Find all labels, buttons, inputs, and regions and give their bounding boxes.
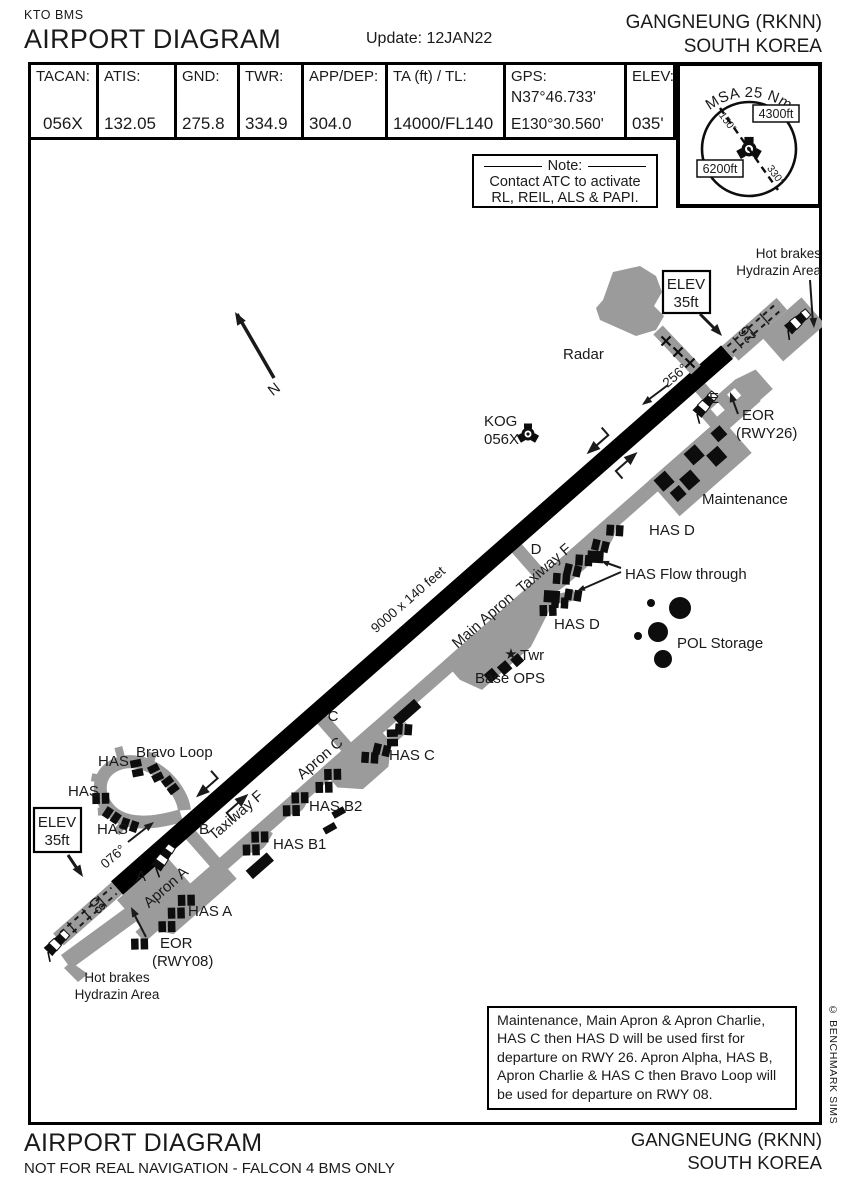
base-ops-label: Base OPS <box>475 670 545 687</box>
taxiway-b-label: B <box>199 821 209 838</box>
elev-08-line2: 35ft <box>44 832 70 849</box>
atc-note-box: Note: Contact ATC to activate RL, REIL, … <box>472 154 658 208</box>
has-label-3: HAS <box>97 821 128 838</box>
pol-storage-label: POL Storage <box>677 635 763 652</box>
bravo-loop-label: Bravo Loop <box>136 744 213 761</box>
elev-08-line1: ELEV <box>38 814 76 831</box>
elev-26-line1: ELEV <box>667 276 705 293</box>
msa-alt-high: 4300ft <box>759 107 794 121</box>
taxiway-d-label: D <box>531 541 542 558</box>
table-cell-gps: GPS: N37°46.733' E130°30.560' <box>506 65 627 137</box>
country-top: SOUTH KOREA <box>684 36 822 58</box>
ta-tl-label: TA (ft) / TL: <box>393 68 467 85</box>
twr-value: 334.9 <box>245 114 288 134</box>
msa-box: MSA 25 Nm 150° 330° 4300ft 6200ft <box>676 62 822 208</box>
tacan-icon <box>517 424 539 443</box>
pol-storage-tanks <box>634 597 691 668</box>
msa-radial-330: 330° <box>764 163 786 188</box>
footer-disclaimer: NOT FOR REAL NAVIGATION - FALCON 4 BMS O… <box>24 1160 395 1177</box>
eor26-line2: (RWY26) <box>736 425 797 442</box>
taxiway-a-label: A <box>136 868 146 885</box>
note-title: Note: <box>548 158 583 174</box>
table-cell-twr: TWR: 334.9 <box>240 65 304 137</box>
has-a-label: HAS A <box>188 903 232 920</box>
tacan-icon <box>736 137 762 159</box>
departure-note-box: Maintenance, Main Apron & Apron Charlie,… <box>487 1006 797 1110</box>
north-arrow: N <box>231 310 284 400</box>
table-cell-tacan: TACAN: 056X <box>31 65 99 137</box>
airport-name-top: GANGNEUNG (RKNN) <box>626 12 822 34</box>
taxiway-e-label: E <box>709 390 719 407</box>
tacan-value: 056X <box>43 114 83 134</box>
eor08-line1: EOR <box>160 935 193 952</box>
table-cell-elev: ELEV: 035' <box>627 65 673 137</box>
tacan-label: TACAN: <box>36 68 90 85</box>
runway-08-26 <box>111 345 733 894</box>
eor08-line2: (RWY08) <box>152 953 213 970</box>
atis-label: ATIS: <box>104 68 140 85</box>
gnd-label: GND: <box>182 68 220 85</box>
has-flow-label: HAS Flow through <box>625 566 747 583</box>
gnd-value: 275.8 <box>182 114 225 134</box>
footer-title: AIRPORT DIAGRAM <box>24 1129 262 1158</box>
elev-label: ELEV: <box>632 68 673 85</box>
gps-label: GPS: <box>511 68 547 85</box>
hot-brakes-08-line1: Hot brakes <box>84 970 150 985</box>
has-b1-label: HAS B1 <box>273 836 326 853</box>
heading-076: 076° <box>98 842 129 872</box>
appdep-label: APP/DEP: <box>309 68 378 85</box>
table-cell-gnd: GND: 275.8 <box>177 65 240 137</box>
frequency-table: TACAN: 056X ATIS: 132.05 GND: 275.8 TWR:… <box>28 62 676 140</box>
ta-tl-value: 14000/FL140 <box>393 114 493 134</box>
airport-name-bottom: GANGNEUNG (RKNN) <box>631 1129 822 1151</box>
maintenance-label: Maintenance <box>702 491 788 508</box>
table-cell-ta-tl: TA (ft) / TL: 14000/FL140 <box>388 65 506 137</box>
update-date: Update: 12JAN22 <box>366 30 492 48</box>
hot-brakes-26-line1: Hot brakes <box>756 246 822 261</box>
country-bottom: SOUTH KOREA <box>687 1152 822 1174</box>
has-b2-label: HAS B2 <box>309 798 362 815</box>
copyright-vertical: © BENCHMARK SIMS <box>827 1004 839 1124</box>
table-cell-atis: ATIS: 132.05 <box>99 65 177 137</box>
elev-box-26: ELEV 35ft <box>663 271 725 339</box>
eor26-line1: EOR <box>742 407 775 424</box>
note-line1: Contact ATC to activate <box>474 174 656 190</box>
elev-26-line2: 35ft <box>673 294 699 311</box>
hot-brakes-08-line2: Hydrazin Area <box>75 987 160 1002</box>
elev-box-08: ELEV 35ft <box>34 808 87 879</box>
page-title: AIRPORT DIAGRAM <box>24 24 281 55</box>
elev-value: 035' <box>632 114 664 134</box>
atis-value: 132.05 <box>104 114 156 134</box>
radar-label: Radar <box>563 346 604 363</box>
note-line2: RL, REIL, ALS & PAPI. <box>474 190 656 206</box>
msa-alt-low: 6200ft <box>703 162 738 176</box>
hot-brakes-26-line2: Hydrazin Area <box>736 263 821 278</box>
table-cell-appdep: APP/DEP: 304.0 <box>304 65 388 137</box>
airport-diagram-canvas: 08 26 <box>28 62 822 1125</box>
appdep-value: 304.0 <box>309 114 352 134</box>
navaid-name: KOG <box>484 413 517 430</box>
navaid-channel: 056X <box>484 431 519 448</box>
has-label-1: HAS <box>98 753 129 770</box>
north-label: N <box>265 379 284 399</box>
has-label-2: HAS <box>68 783 99 800</box>
radar-site-pad <box>596 266 664 336</box>
twr-label: TWR: <box>245 68 283 85</box>
has-d-label-upper: HAS D <box>649 522 695 539</box>
gps-lat: N37°46.733' <box>511 89 596 107</box>
taxiway-c-label: C <box>328 708 339 725</box>
tower-label: Twr <box>520 647 544 664</box>
program-label: KTO BMS <box>24 8 84 22</box>
has-c-label: HAS C <box>389 747 435 764</box>
gps-lon: E130°30.560' <box>511 116 604 134</box>
tower-star-icon: ★ <box>504 646 517 663</box>
has-d-label-lower: HAS D <box>554 616 600 633</box>
